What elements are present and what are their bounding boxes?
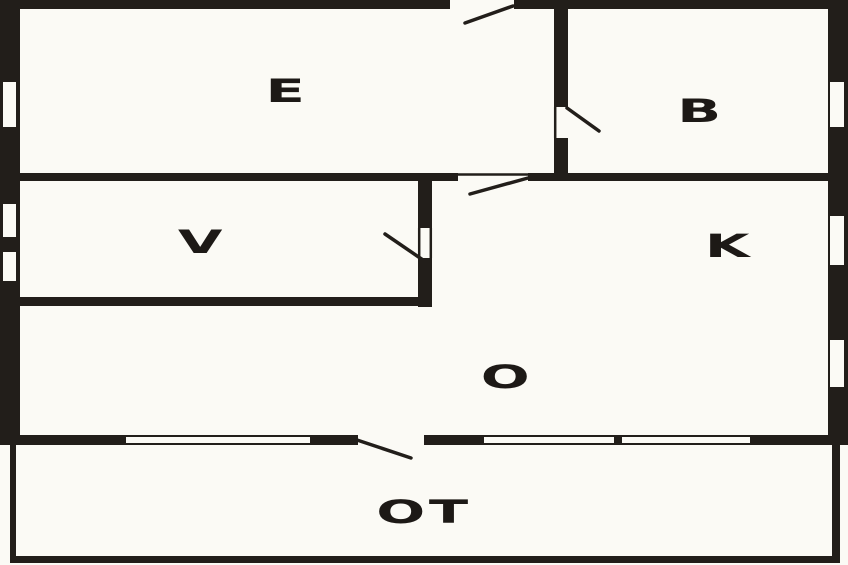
exterior-wall-top-right xyxy=(514,0,848,9)
floor-plan: E B V K O OT xyxy=(0,0,848,565)
window-icon xyxy=(3,252,16,281)
room-label-k: K xyxy=(705,230,753,262)
window-icon xyxy=(622,435,750,445)
window-icon xyxy=(830,216,844,265)
interior-wall-v-right-upper xyxy=(418,181,432,228)
terrace-border-left xyxy=(10,445,16,558)
door-swing-icon xyxy=(567,108,599,131)
exterior-wall-top-left xyxy=(0,0,450,9)
door-swing-icon xyxy=(465,6,513,23)
exterior-wall-bottom-seg xyxy=(424,435,484,445)
window-icon xyxy=(126,435,310,445)
exterior-wall-bottom-seg xyxy=(0,435,126,445)
window-icon xyxy=(830,82,844,127)
exterior-wall-bottom-seg xyxy=(614,435,622,445)
window-icon xyxy=(830,340,844,387)
room-label-b: B xyxy=(677,95,725,127)
door-swing-icon xyxy=(470,178,528,194)
room-label-o: O xyxy=(481,361,534,393)
interior-wall-e-b-upper xyxy=(554,9,568,107)
window-icon xyxy=(3,82,16,127)
interior-wall-hall-left xyxy=(15,173,458,181)
room-label-ot: OT xyxy=(376,496,471,528)
interior-wall-e-b-lower xyxy=(554,138,568,181)
exterior-wall-bottom-seg xyxy=(750,435,848,445)
door-swing-icon xyxy=(385,234,423,260)
exterior-wall-bottom-seg xyxy=(310,435,358,445)
room-label-e: E xyxy=(266,75,309,107)
window-icon xyxy=(3,204,16,237)
terrace-border-bottom xyxy=(10,556,840,563)
window-icon xyxy=(484,435,614,445)
door-swing-icon xyxy=(357,440,411,458)
room-label-v: V xyxy=(178,226,226,258)
interior-wall-v-bottom xyxy=(20,297,432,306)
interior-wall-hall-right xyxy=(528,173,828,181)
terrace-border-right xyxy=(832,445,840,558)
